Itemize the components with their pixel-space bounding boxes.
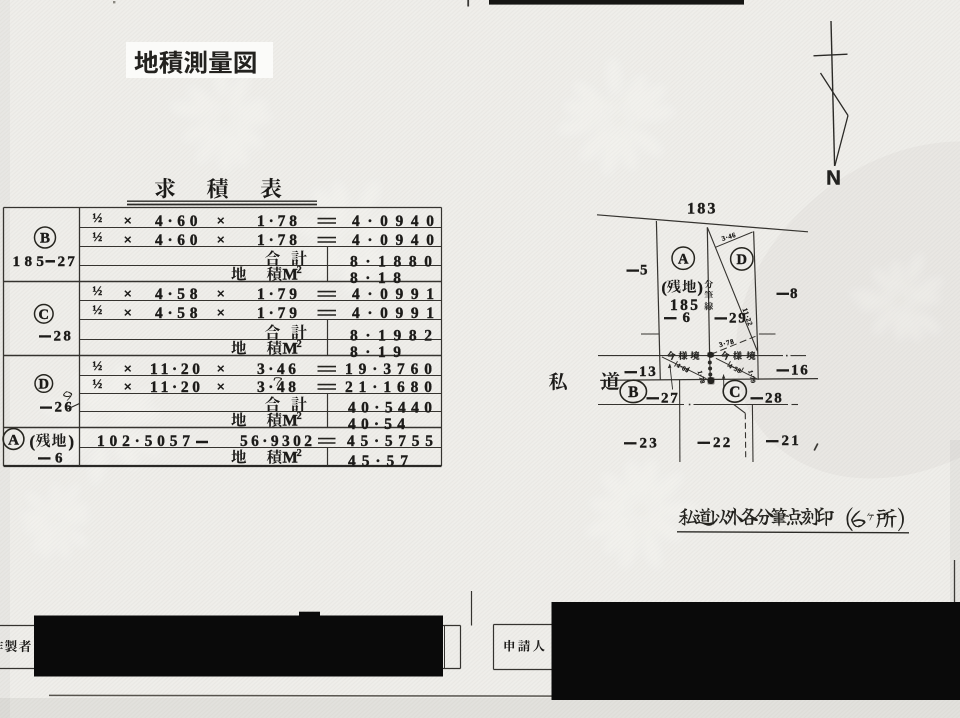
svg-text:½: ½ (93, 283, 103, 298)
svg-text:M: M (283, 449, 298, 467)
svg-text:×: × (217, 287, 226, 303)
svg-text:22: 22 (713, 435, 732, 451)
svg-text:4·58: 4·58 (155, 286, 198, 303)
svg-text:21: 21 (782, 433, 801, 449)
svg-text:×: × (217, 306, 226, 322)
svg-text:D: D (39, 376, 49, 392)
svg-text:1·78: 1·78 (257, 213, 297, 230)
svg-text:16: 16 (791, 362, 810, 378)
svg-text:102·5057: 102·5057 (97, 433, 190, 450)
svg-text:½: ½ (93, 376, 103, 391)
svg-text:D: D (737, 252, 747, 268)
svg-text:×: × (124, 362, 133, 378)
svg-text:5: 5 (640, 263, 649, 279)
svg-text:6: 6 (683, 310, 692, 326)
svg-text:×: × (124, 380, 133, 396)
svg-text:A: A (678, 252, 689, 268)
svg-text:×: × (217, 214, 226, 230)
svg-text:28: 28 (765, 390, 784, 406)
svg-text:4·60: 4·60 (155, 213, 198, 230)
svg-text:2: 2 (297, 411, 302, 422)
svg-text:M: M (283, 340, 298, 358)
svg-text:½: ½ (93, 302, 103, 317)
svg-text:×: × (217, 233, 226, 249)
svg-text:C: C (39, 307, 49, 323)
svg-text:½: ½ (93, 358, 103, 373)
svg-text:4·60: 4·60 (155, 232, 198, 249)
svg-text:×: × (217, 362, 226, 378)
svg-text:): ) (69, 432, 75, 451)
svg-text:×: × (124, 306, 133, 322)
svg-text:B: B (40, 231, 50, 247)
svg-text:28: 28 (54, 328, 74, 344)
svg-text:4·58: 4·58 (155, 305, 198, 322)
svg-text:1·78: 1·78 (257, 232, 297, 249)
svg-text:27: 27 (661, 390, 680, 406)
svg-text:M: M (283, 412, 298, 430)
svg-text:27: 27 (58, 253, 78, 270)
svg-text:(: ( (662, 280, 667, 297)
svg-text:B: B (628, 384, 638, 401)
svg-text:8: 8 (790, 286, 799, 302)
svg-text:1·79: 1·79 (257, 305, 297, 322)
svg-text:C: C (729, 384, 740, 401)
svg-text:13: 13 (639, 364, 658, 380)
svg-text:183: 183 (687, 200, 716, 218)
svg-text:½: ½ (93, 210, 103, 225)
svg-text:×: × (217, 380, 226, 396)
svg-text:½: ½ (93, 229, 103, 244)
svg-text:1·79: 1·79 (257, 286, 297, 303)
svg-text:3·46: 3·46 (257, 361, 296, 378)
svg-text:): ) (698, 280, 703, 297)
svg-text:×: × (124, 214, 133, 230)
svg-text:×: × (124, 233, 133, 249)
svg-text:A: A (8, 432, 19, 448)
svg-text:2: 2 (297, 339, 302, 350)
svg-text:(: ( (30, 432, 36, 451)
svg-text:6: 6 (55, 450, 64, 466)
svg-text:M: M (283, 266, 298, 284)
svg-text:185: 185 (13, 253, 45, 270)
svg-text:N: N (826, 167, 841, 190)
svg-text:23: 23 (640, 435, 659, 451)
svg-text:×: × (124, 287, 133, 303)
svg-text:2: 2 (297, 265, 302, 276)
svg-text:2: 2 (297, 448, 302, 459)
svg-text:3·48: 3·48 (257, 379, 296, 396)
